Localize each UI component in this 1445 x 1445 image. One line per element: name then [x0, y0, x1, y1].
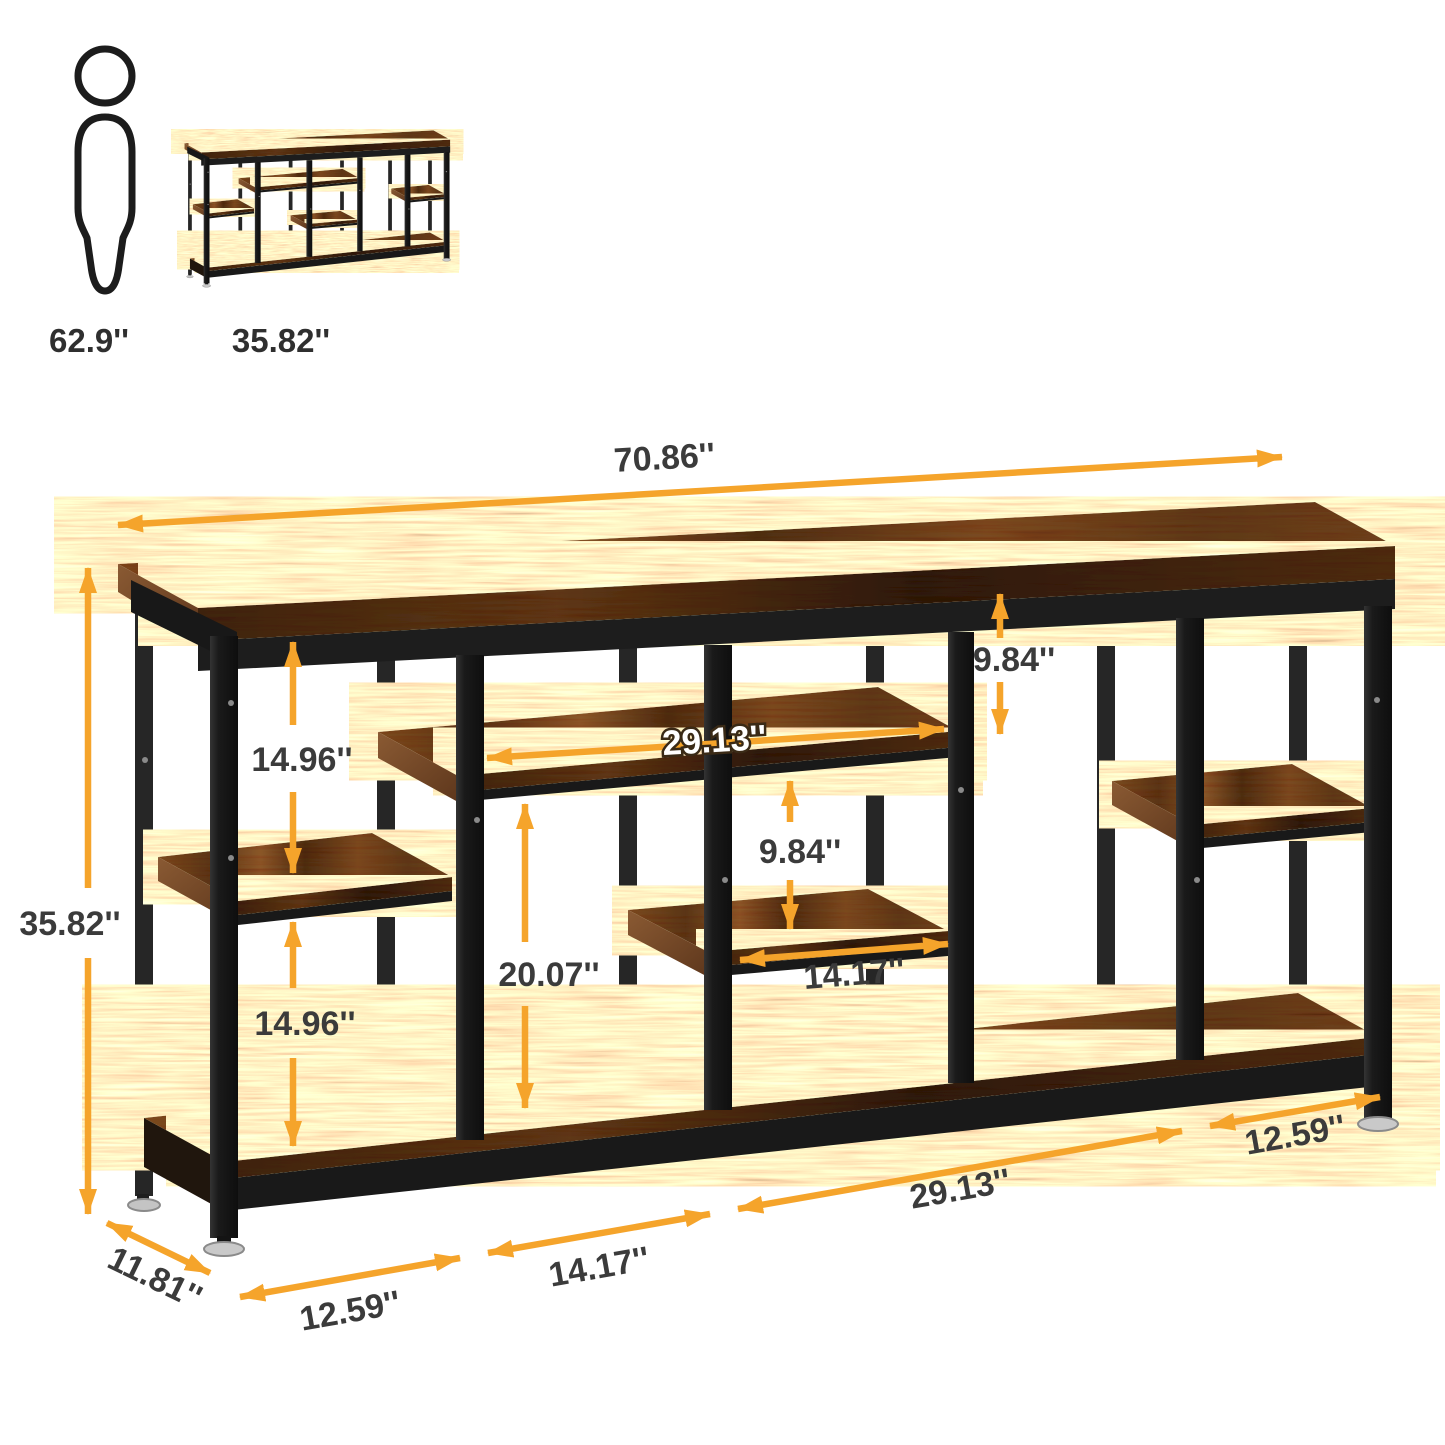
- person-icon: [78, 49, 132, 291]
- product-thumbnail: [185, 130, 451, 287]
- dim-lower-middle-height: 20.07'': [498, 804, 599, 1108]
- dim-top-right-gap-label: 9.84'': [973, 641, 1055, 679]
- dim-depth: 11.81'': [102, 1223, 210, 1317]
- dim-depth-label: 11.81'': [102, 1239, 208, 1317]
- dim-upper-left-gap-label: 14.96'': [251, 741, 352, 779]
- dim-bottom-bay-2: 14.17'': [488, 1214, 710, 1295]
- dim-overall-height: 35.82'': [19, 568, 120, 1214]
- console-table-illustration: [118, 502, 1398, 1256]
- dim-lower-left-gap-label: 14.96'': [254, 1005, 355, 1043]
- dim-middle-shelf-width-label: 29.13'': [661, 718, 767, 763]
- dim-bottom-bay-1-label: 12.59'': [297, 1284, 403, 1339]
- dim-middle-lower-shelf-width-label: 14.17'': [802, 951, 906, 997]
- dim-top-width: 70.86'': [118, 436, 1282, 525]
- person-height-label: 62.9'': [49, 322, 129, 359]
- dimension-diagram-page: 62.9'' 35.82'' 70.86'' 35.82'' 14.96'' 1…: [0, 0, 1445, 1445]
- dim-lower-middle-height-label: 20.07'': [498, 956, 599, 994]
- scale-reference: 62.9'' 35.82'': [49, 49, 451, 359]
- dim-bottom-bay-4: 12.59'': [1210, 1097, 1380, 1163]
- product-dimension-diagram: 62.9'' 35.82'' 70.86'' 35.82'' 14.96'' 1…: [0, 0, 1445, 1445]
- dim-top-width-label: 70.86'': [613, 436, 716, 480]
- dim-middle-gap-label: 9.84'': [759, 833, 841, 871]
- thumbnail-height-label: 35.82'': [232, 322, 330, 359]
- dim-overall-height-label: 35.82'': [19, 905, 120, 943]
- dim-bottom-bay-2-label: 14.17'': [546, 1240, 652, 1295]
- dim-bottom-bay-3-label: 29.13'': [907, 1162, 1013, 1217]
- dim-bottom-bay-1: 12.59'': [240, 1258, 460, 1339]
